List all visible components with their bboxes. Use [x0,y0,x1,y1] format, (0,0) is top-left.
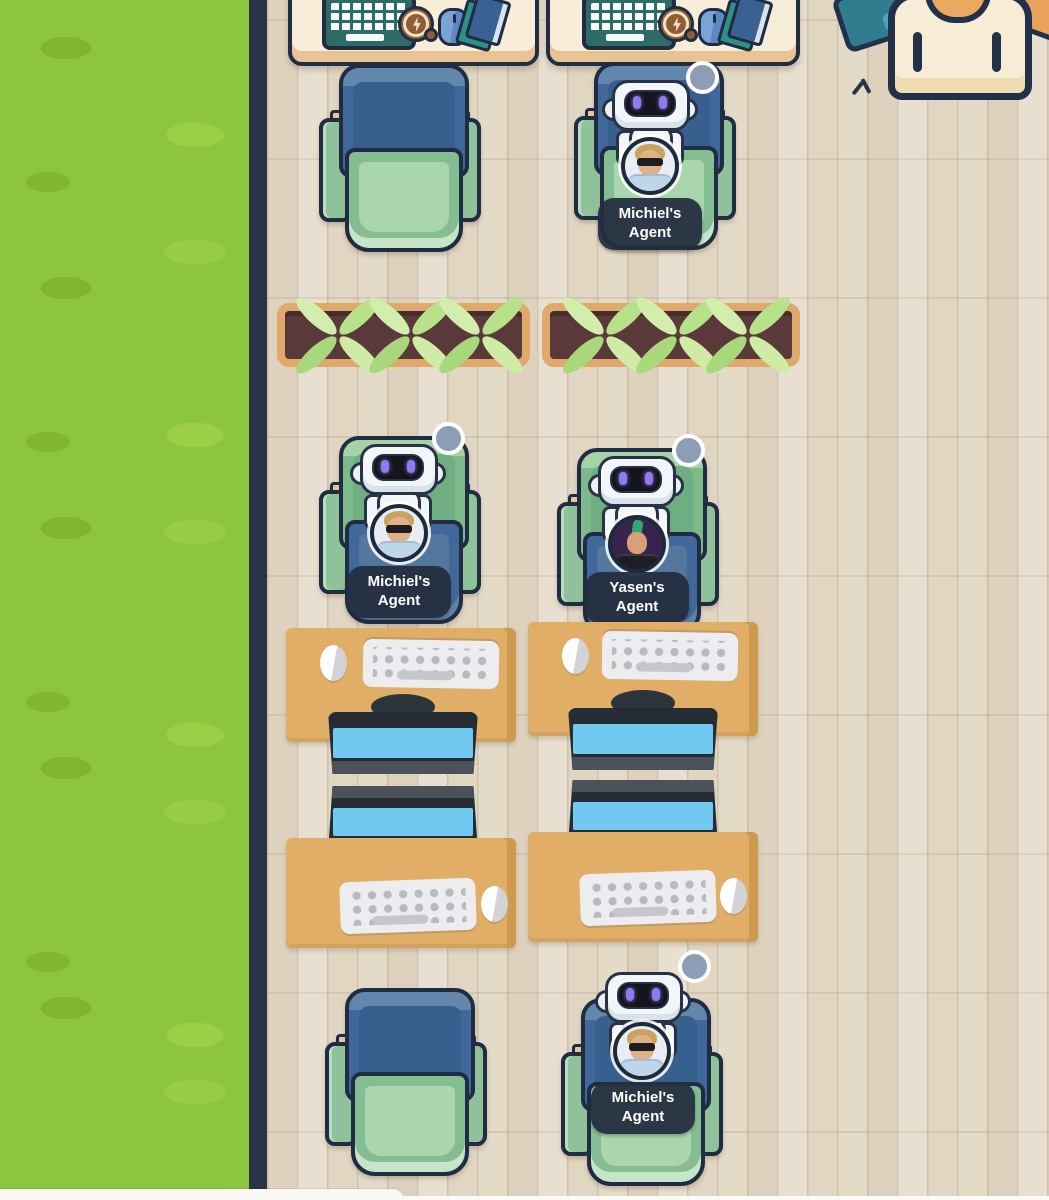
empty-chair[interactable] [330,64,470,249]
agent-name-label: Michiel's Agent [598,198,702,250]
avatar [613,1022,671,1080]
planter-box-right [542,303,800,367]
top-desk-left [288,0,539,66]
mouse-icon [720,878,747,914]
office-wall [249,0,267,1200]
monitor-icon [328,694,478,786]
work-desk [286,838,516,948]
book-stack-icon [724,0,770,48]
planter-box-left [277,303,530,367]
player-character[interactable] [883,0,1033,92]
player-arm [992,32,1001,72]
status-dot [432,422,465,455]
grass-yard [0,0,249,1200]
avatar [621,137,679,195]
agent-name-label: Michiel's Agent [347,566,451,618]
mouse-icon [562,638,589,674]
avatar [608,515,666,573]
player-arm [913,32,922,72]
top-desk-right [546,0,800,66]
coffee-energy-icon [658,6,694,42]
status-dot [678,950,711,983]
keyboard-icon [579,870,717,927]
avatar [370,504,428,562]
agent-top[interactable]: Michiel's Agent [580,58,730,268]
mouse-icon [320,645,347,681]
bottom-ui-panel[interactable] [0,1189,404,1200]
agent-name-label: Michiel's Agent [591,1082,695,1134]
work-desk [528,832,758,942]
agent-bottom[interactable]: Michiel's Agent [570,956,720,1171]
agent-mid-left[interactable]: Michiel's Agent [328,428,478,638]
status-dot [686,61,719,94]
keyboard-icon [339,878,477,935]
empty-chair[interactable] [336,988,476,1173]
mouse-icon [481,886,508,922]
agent-name-label: Yasen's Agent [585,572,689,624]
status-dot [672,434,705,467]
monitor-icon [568,690,718,782]
keyboard-icon [602,631,739,681]
office-scene: Michiel's Agent Michiel's Agent [0,0,1049,1200]
small-floor-glyph [851,76,875,104]
keyboard-icon [363,639,500,689]
book-stack-icon [462,0,508,48]
agent-mid-right[interactable]: Yasen's Agent [565,438,715,648]
coffee-energy-icon [398,6,434,42]
